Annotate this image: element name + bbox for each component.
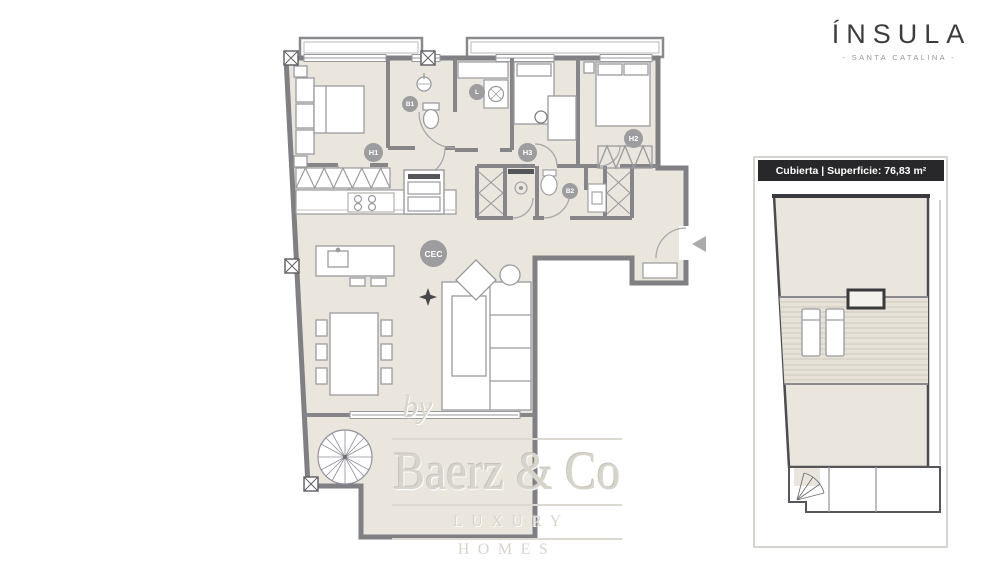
skylight: [848, 290, 884, 308]
roof-plan-panel: [754, 157, 947, 547]
spiral-staircase: [318, 430, 372, 484]
entry-doormat: [643, 263, 677, 278]
room-label-cec: CEC: [420, 240, 447, 267]
floorplan-page: ÍNSULA - SANTA CATALINA - Cubierta | Sup…: [0, 0, 1000, 564]
terrace-window: [350, 412, 520, 419]
room-label-h3: H3: [518, 143, 537, 162]
room-label-h1: H1: [364, 143, 383, 162]
room-label-h2: H2: [624, 129, 643, 148]
room-label-b1: B1: [402, 96, 418, 112]
brand-name: ÍNSULA: [816, 20, 980, 48]
entry-arrow-icon: [692, 236, 706, 252]
roof-panel-header: Cubierta | Superficie: 76,83 m²: [758, 160, 944, 181]
kitchen: [296, 168, 456, 214]
room-label-l: L: [469, 84, 485, 100]
sofa: [442, 282, 531, 410]
brand-logo: ÍNSULA - SANTA CATALINA -: [816, 20, 980, 62]
floor-plan-drawing: [0, 0, 1000, 564]
entry-opening: [679, 226, 693, 260]
roof-deck: [774, 297, 928, 384]
brand-subtitle: - SANTA CATALINA -: [816, 53, 980, 62]
dining-table: [316, 313, 392, 395]
room-label-b2: B2: [562, 183, 578, 199]
